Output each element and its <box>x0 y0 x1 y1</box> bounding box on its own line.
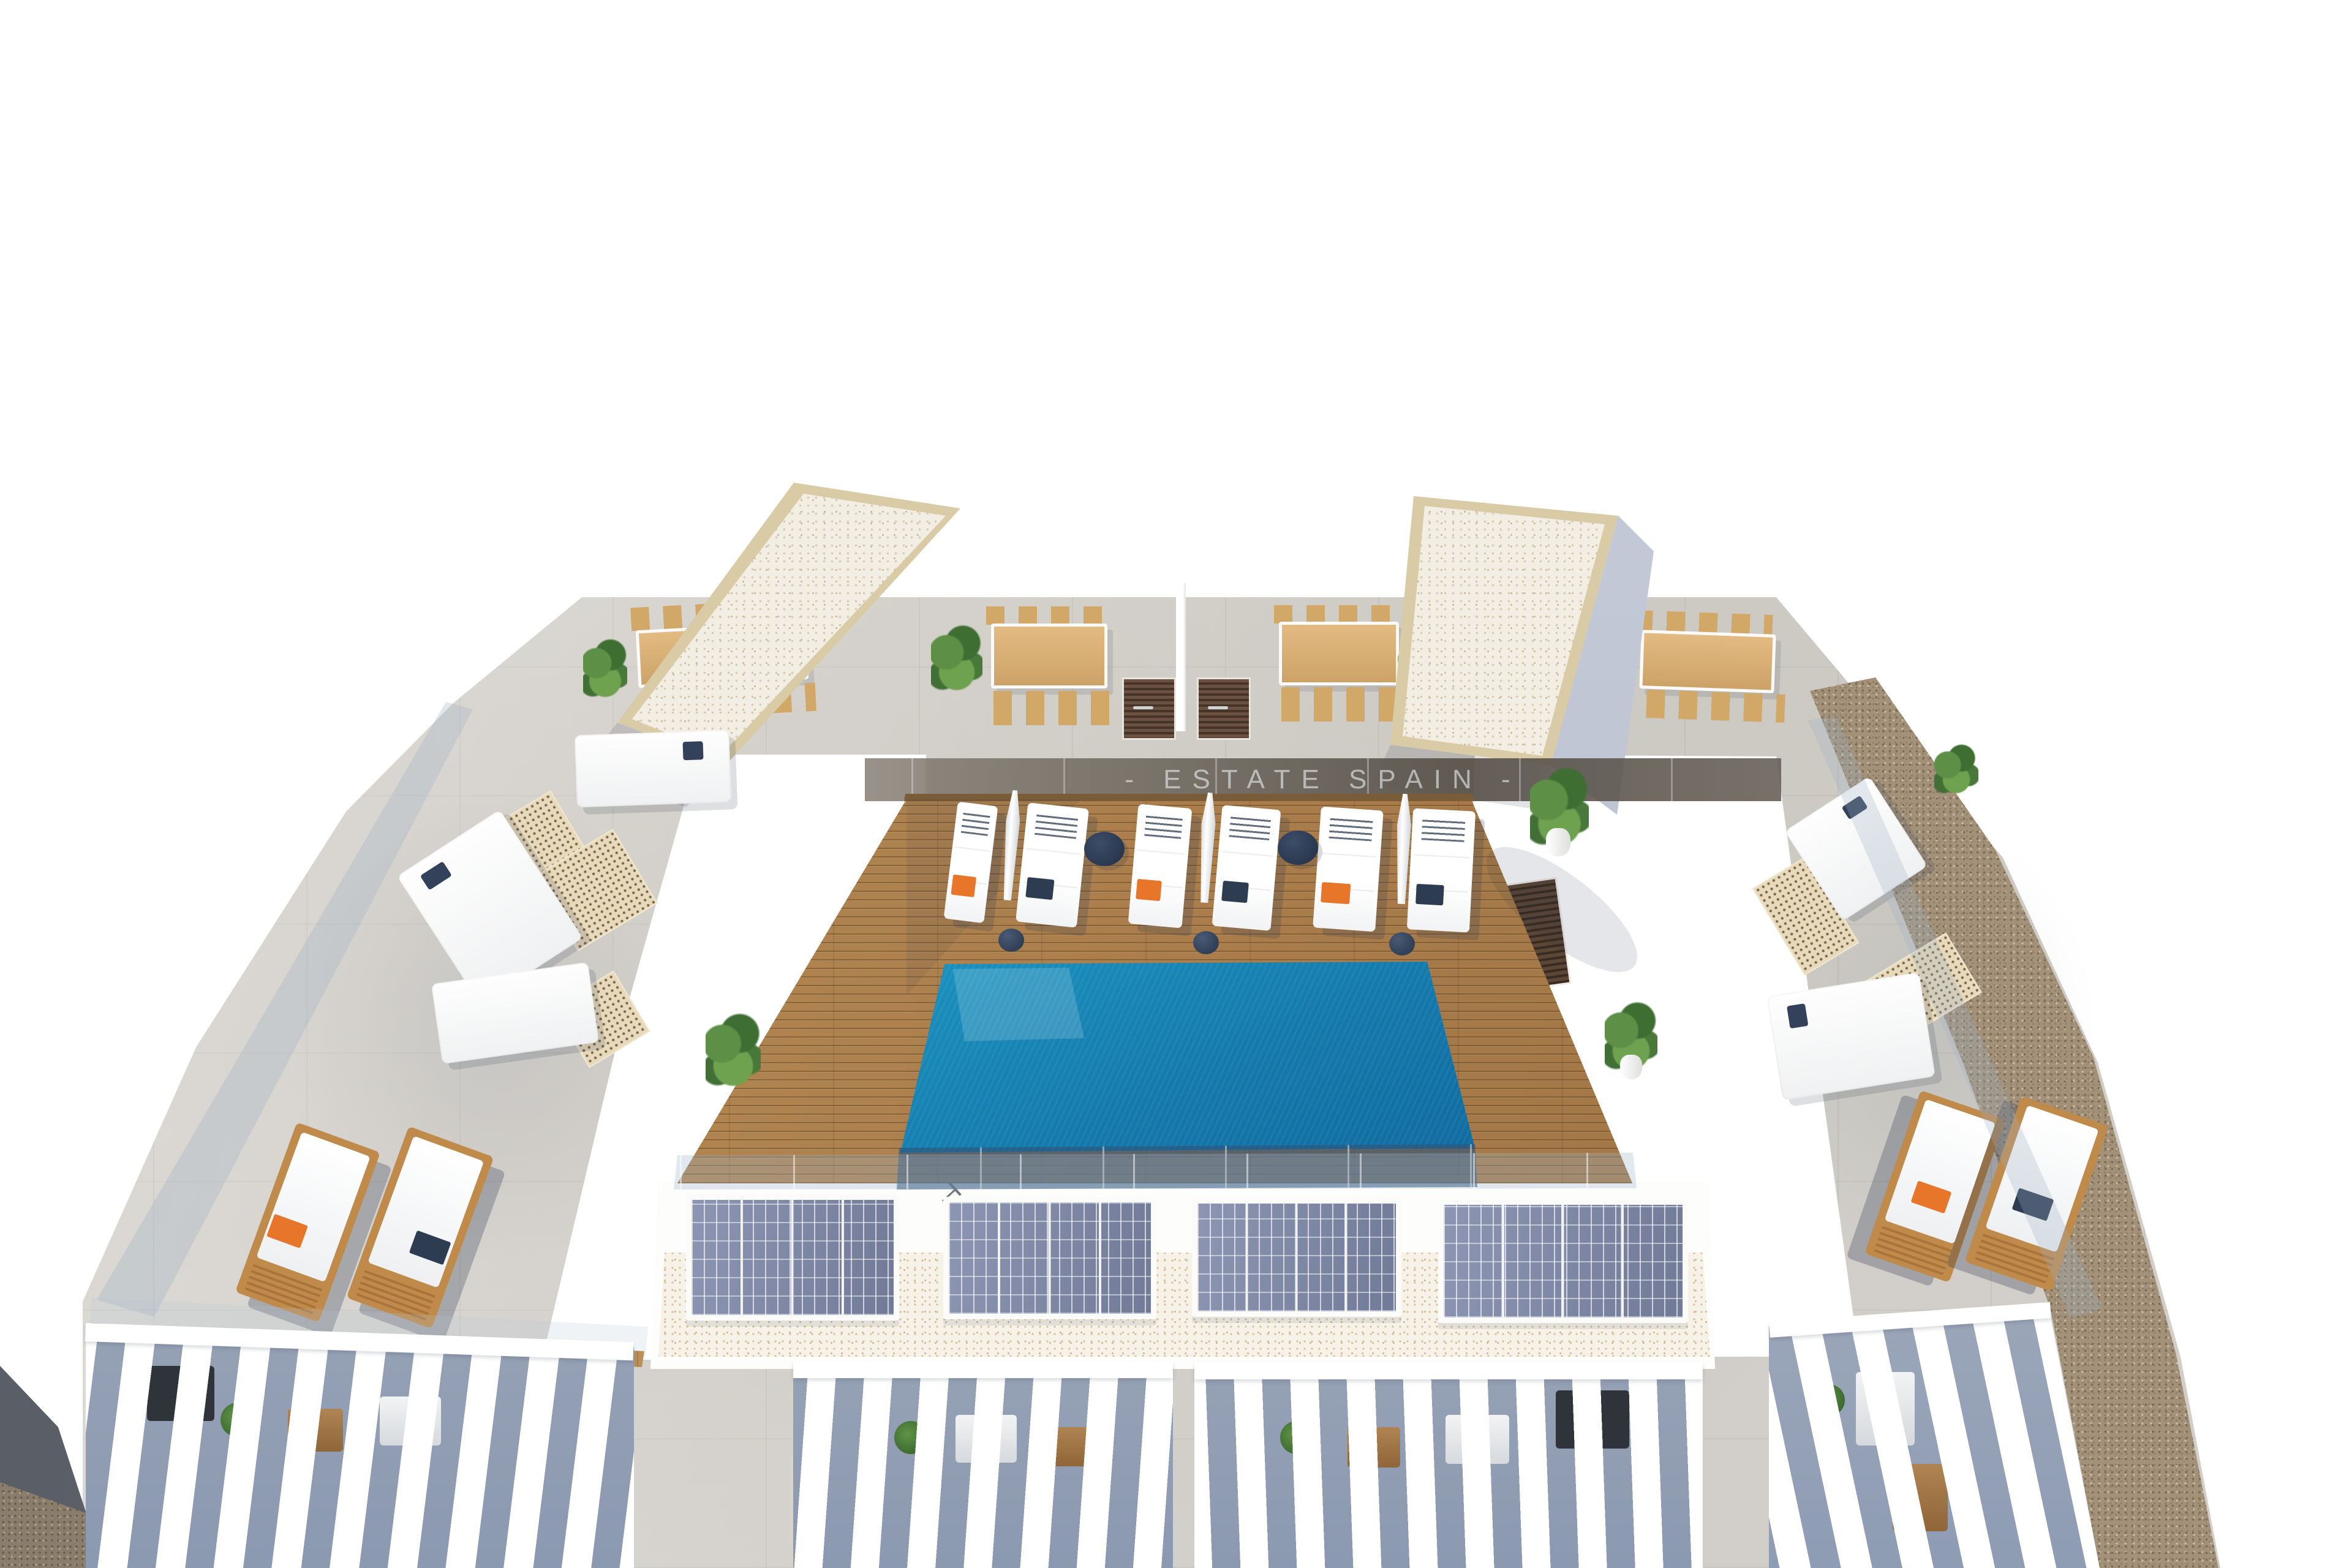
palm-plant <box>583 636 627 704</box>
sun-lounger <box>1407 808 1476 932</box>
plant-pot <box>1620 1055 1642 1079</box>
umbrella-base <box>998 929 1024 952</box>
sun-lounger <box>1313 807 1384 932</box>
umbrella-base <box>1193 931 1219 954</box>
sun-lounger <box>1212 805 1281 931</box>
dining4-chairs-front <box>1646 690 1785 723</box>
umbrella-base <box>1389 932 1415 956</box>
dining4-table <box>1639 630 1776 693</box>
solar-panel-group <box>1438 1199 1688 1323</box>
render-canvas: { "meta": { "title": "Rooftop terrace wi… <box>0 0 2352 1568</box>
dining2-stools-front <box>993 691 1115 725</box>
dining3-table <box>1279 622 1399 685</box>
dining2-stools-back <box>986 606 1107 625</box>
dining2-table <box>991 624 1107 688</box>
louvered-door-left <box>1122 677 1176 740</box>
pergola-beam <box>1194 1362 1703 1379</box>
round-side-table <box>1278 831 1318 865</box>
solar-panel-group <box>943 1197 1156 1319</box>
door-handle <box>1208 706 1228 709</box>
round-side-table <box>1084 832 1125 866</box>
sun-lounger <box>1128 804 1193 929</box>
solar-panel-group <box>686 1194 899 1321</box>
sofa-set <box>575 730 731 808</box>
louvered-door-right <box>1197 677 1251 740</box>
door-handle <box>1133 706 1153 709</box>
pergola-beam <box>793 1361 1173 1378</box>
dining3-stools-back <box>1274 605 1398 624</box>
sun-lounger <box>1016 802 1089 927</box>
shrub-plant <box>1934 742 1978 799</box>
dining3-stools-front <box>1281 687 1405 722</box>
palm-plant <box>706 1009 761 1095</box>
solar-panel-group <box>1192 1198 1401 1317</box>
palm-plant <box>931 622 982 698</box>
plant-pot <box>1546 828 1570 856</box>
white-pillar <box>1176 583 1186 731</box>
